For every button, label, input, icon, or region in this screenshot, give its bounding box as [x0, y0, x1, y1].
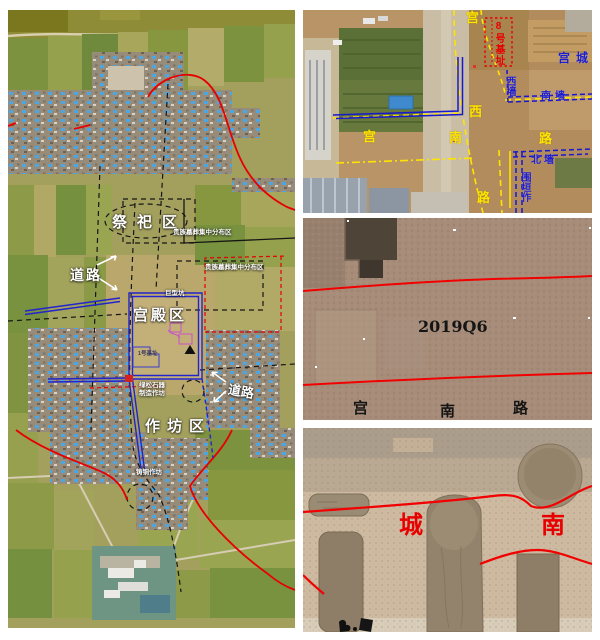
archaeology-figure: { "site_map": { "sacrificial_area_label"… [0, 0, 600, 640]
giant-pit-label: 巨型坑 [165, 291, 185, 298]
site-map-panel: 祭祀区 贵族墓葬集中分布区 道路 贵族墓葬集中分布区 巨型坑 宫殿区 1号基址 … [8, 10, 295, 628]
north-wall-label: 北墙 [531, 156, 557, 166]
road-label-east: 道路 [227, 383, 255, 400]
turquoise-workshop-label-line1: 绿松石器 [139, 383, 165, 390]
palace-west-road-char-bottom: 路 [477, 191, 490, 204]
modern-compound [92, 546, 176, 620]
q6-road-char-3: 路 [513, 401, 528, 416]
palace-city-label: 宫城 [558, 52, 592, 64]
palace-area-label: 宫殿区 [133, 308, 187, 323]
turquoise-workshop-label-line2: 制造作坊 [139, 391, 165, 398]
foundation-no8-label: 8号基址 [493, 21, 503, 66]
south-char-label: 南 [541, 514, 565, 538]
crossroad-red-marker [125, 375, 133, 382]
q6-road-char-2: 南 [440, 404, 455, 419]
foundation-no1-label: 1号基址 [138, 352, 158, 358]
palace-south-road-char-1: 宫 [363, 130, 376, 143]
palace-roads-photo [303, 10, 592, 213]
trench-id-label: 2019Q6 [418, 319, 488, 335]
palace-roads-panel: 宫 西 路 宫 南 路 宫城 8号基址 西墙 南墙 北墙 围垣作 [303, 10, 592, 213]
city-char-label: 城 [399, 514, 423, 538]
palace-south-road-char-3: 路 [539, 132, 552, 145]
palace-west-road-char-top: 宫 [466, 11, 479, 24]
q6-road-char-1: 宫 [353, 401, 368, 416]
city-south-panel: 城 南 [303, 428, 592, 632]
workshop-area-label: 作坊区 [145, 419, 211, 434]
west-wall-label: 西墙 [504, 76, 514, 96]
road-label-west: 道路 [70, 268, 102, 282]
palace-west-road-char-mid: 西 [469, 105, 482, 118]
sacrificial-area-label: 祭祀区 [112, 215, 187, 230]
trench-q6-panel: 2019Q6 宫 南 路 [303, 218, 592, 420]
noble-tombs-label-top: 贵族墓葬集中分布区 [173, 230, 232, 237]
enclosure-workshop-label: 围垣作 [519, 172, 529, 202]
palace-south-road-char-2: 南 [449, 131, 462, 144]
south-wall-label: 南墙 [541, 92, 569, 102]
bronze-workshop-label: 铸铜作坊 [136, 470, 162, 477]
noble-tombs-label-right: 贵族墓葬集中分布区 [205, 265, 264, 272]
